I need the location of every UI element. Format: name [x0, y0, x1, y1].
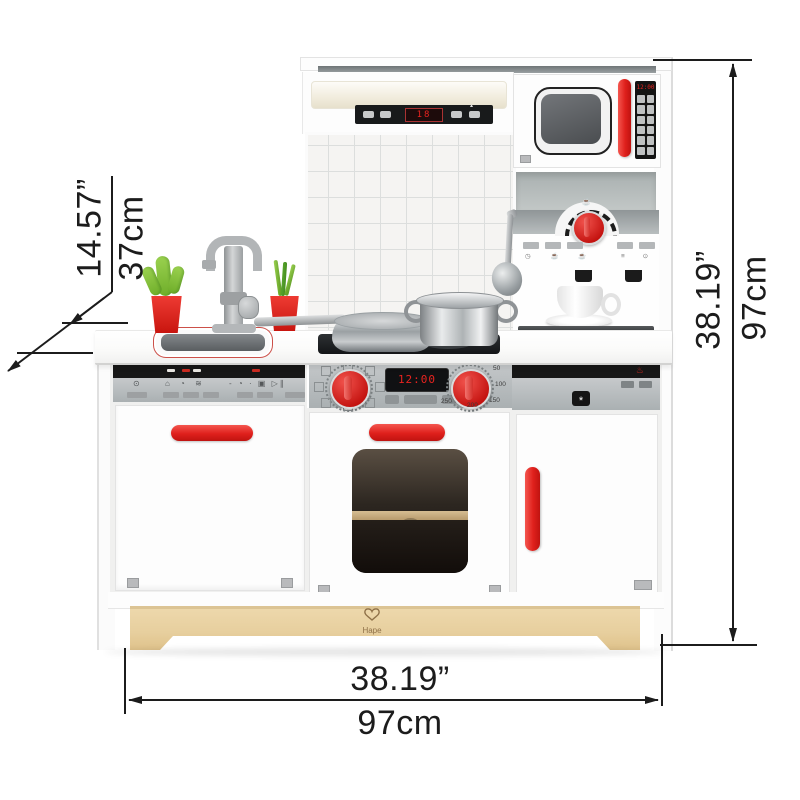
floor-shadow: [105, 648, 665, 656]
microwave-control-panel: 12:00: [635, 81, 656, 159]
hood-control-panel: 18 ▴: [355, 105, 493, 124]
height-label-inches: 38.19”: [690, 250, 729, 349]
sink-basin: [161, 334, 265, 351]
microwave-hinge: [520, 155, 531, 163]
hood-button: [380, 111, 391, 118]
coffee-machine: ☕ ◷ ☕ ☕ ≡ ⊙: [513, 210, 659, 335]
hape-logo: Hape: [352, 607, 392, 641]
microwave-handle: [618, 79, 631, 157]
temp-label: 200: [467, 402, 478, 409]
cabinet-control-panel: *: [512, 378, 660, 410]
coffee-button: [617, 242, 633, 249]
temp-label: 150: [489, 397, 500, 404]
faucet-base: [212, 324, 256, 333]
microwave-keypad: [637, 95, 654, 155]
temp-label: 250: [441, 398, 452, 405]
coffee-cup: [557, 286, 603, 318]
microwave-window: [534, 87, 612, 155]
product-photo-play-kitchen: 18 ▴ 12:00: [0, 0, 800, 800]
hood-display: 18: [405, 108, 443, 122]
oven-window: [352, 449, 468, 573]
alert-icon: ♨: [636, 365, 644, 376]
width-label-cm: 97cm: [357, 704, 442, 743]
power-icon: ⊙: [133, 379, 143, 388]
coffee-button: [567, 242, 583, 249]
range-hood: 18 ▴: [302, 72, 514, 134]
faucet-column: [224, 246, 243, 332]
depth-arrow-upper: [70, 298, 104, 324]
height-label-cm: 97cm: [736, 255, 775, 340]
mode-icons: ⌂ ◔ ≋: [165, 379, 206, 388]
cabinet-handle: [525, 467, 540, 551]
depth-label-inches: 14.57”: [71, 178, 110, 277]
microwave: 12:00: [513, 74, 661, 168]
hape-heart-icon: [361, 607, 383, 624]
coffee-knob: [572, 211, 606, 245]
door-hinge: [281, 578, 293, 588]
depth-label-cm: 37cm: [113, 195, 152, 280]
coffee-right-icons: ≡ ⊙: [621, 252, 656, 260]
faucet-knob: [238, 296, 259, 319]
cup-handle: [601, 293, 621, 316]
freeze-icon: *: [579, 395, 583, 407]
option-icons: - ◔ · ▣ ▷∥: [229, 379, 286, 388]
cabinet-door: [516, 414, 658, 594]
coffee-spout: [575, 270, 592, 282]
hood-button: [363, 111, 374, 118]
microwave-display: 12:00: [636, 84, 655, 91]
coffee-cup-icon: ☕: [582, 198, 591, 206]
plant-pot: [150, 296, 183, 333]
oven-control-panel: 12:00 50 100 150 200 250: [307, 360, 514, 408]
oven-handle: [369, 424, 445, 441]
width-label-inches: 38.19”: [350, 660, 449, 699]
temp-label: 100: [495, 381, 506, 388]
hood-button: [469, 111, 480, 118]
ladle: [490, 208, 530, 300]
stock-pot: [402, 290, 512, 348]
coffee-button: [545, 242, 561, 249]
hape-logo-text: Hape: [352, 626, 392, 635]
coffee-left-icons: ◷ ☕ ☕: [525, 252, 595, 260]
oven-knob-left: [330, 369, 370, 409]
coffee-button: [639, 242, 655, 249]
dishwasher-door: [115, 405, 305, 591]
dishwasher-control-panel: ⊙ ⌂ ◔ ≋ - ◔ · ▣ ▷∥: [113, 378, 305, 402]
door-hinge: [127, 578, 139, 588]
freeze-button: *: [572, 391, 590, 406]
faucet: [198, 230, 262, 334]
faucet-spout: [202, 260, 216, 269]
oven-display: 12:00: [385, 368, 449, 392]
dishwasher-handle: [171, 425, 253, 441]
temp-label: 50: [493, 365, 500, 372]
fan-speed-icon: ▴: [470, 102, 473, 109]
door-latch: [634, 580, 652, 590]
coffee-spout: [625, 270, 642, 282]
hood-button: [451, 111, 462, 118]
oven-door: [309, 412, 510, 598]
